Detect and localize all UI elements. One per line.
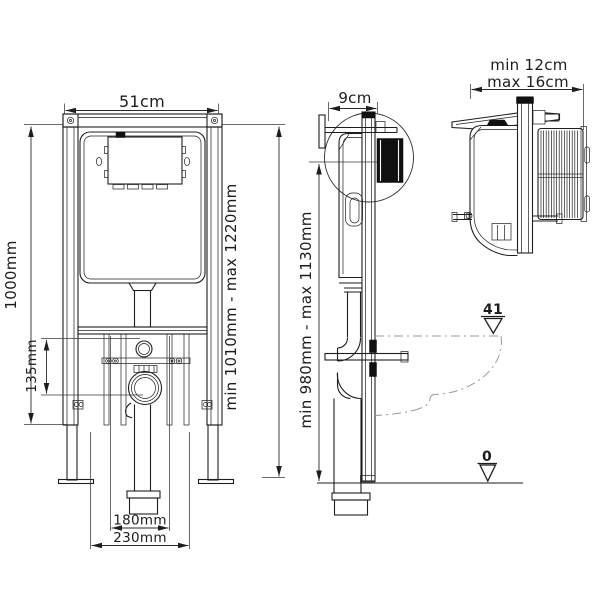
front-height-label: 1000mm	[2, 240, 20, 309]
front-base-width-label: 230mm	[113, 530, 167, 546]
detail-min-label: min 12cm	[490, 56, 567, 74]
front-dimensions: 51cm 1000mm 135mm min 1010mm - max 1220m…	[2, 92, 285, 549]
wall-anchor	[319, 115, 325, 148]
detail-cistern	[465, 120, 518, 256]
seat-level-label: 41	[483, 302, 503, 318]
detail-max-label: max 16cm	[487, 73, 569, 91]
front-range-label: min 1010mm - max 1220mm	[222, 183, 240, 410]
technical-drawing-wc-frame: 51cm 1000mm 135mm min 1010mm - max 1220m…	[0, 0, 600, 600]
floor-level-marker: 0	[478, 449, 498, 481]
drain-outlet	[129, 372, 162, 405]
front-view: 51cm 1000mm 135mm min 1010mm - max 1220m…	[2, 92, 285, 549]
level-triangle-icon	[485, 319, 503, 334]
mounting-frame	[59, 114, 234, 484]
adjustable-ribbed-connector	[538, 127, 590, 222]
screw-hole-right	[184, 157, 189, 165]
seat-level-marker: 41	[481, 302, 505, 333]
front-offset-label: 135mm	[24, 339, 40, 393]
front-width-label: 51cm	[119, 92, 165, 111]
screw-hole-left	[96, 157, 101, 165]
side-depth-label: 9cm	[338, 89, 371, 107]
detail-view: min 12cm max 16cm	[452, 56, 590, 256]
cistern-tab	[487, 120, 508, 126]
front-drain-width-label: 180mm	[113, 513, 167, 529]
level-triangle-icon	[480, 465, 496, 481]
floor-level-label: 0	[482, 449, 492, 465]
cistern-tab	[116, 132, 125, 138]
toilet-bowl-outline	[375, 336, 501, 416]
concealed-cistern	[80, 132, 205, 283]
side-range-label: min 980mm - max 1130mm	[297, 211, 315, 428]
